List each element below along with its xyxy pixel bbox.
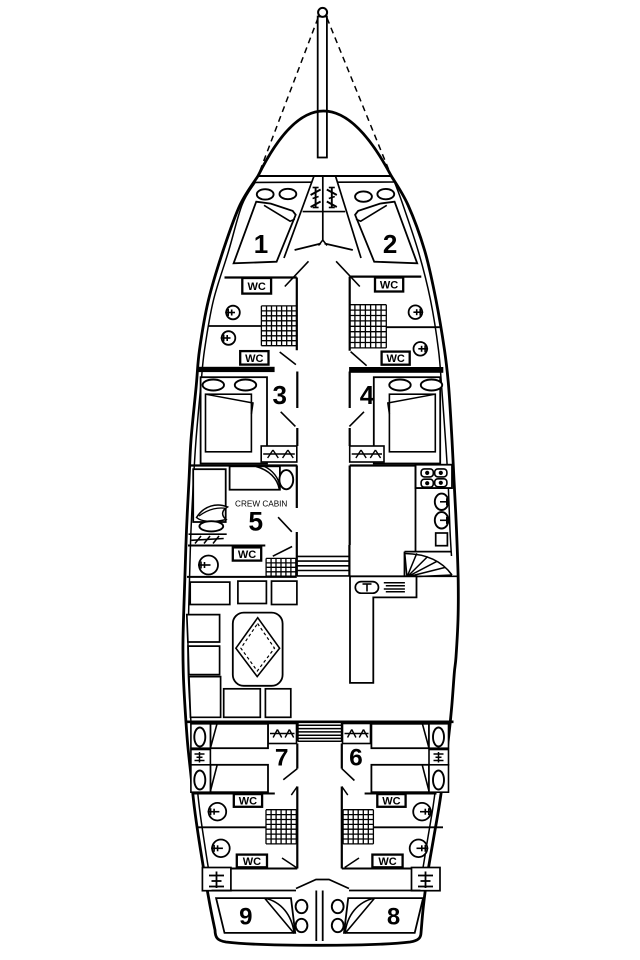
svg-text:WC: WC <box>248 281 266 293</box>
svg-text:8: 8 <box>387 904 400 931</box>
svg-text:WC: WC <box>239 795 257 807</box>
svg-text:WC: WC <box>238 549 256 561</box>
svg-text:6: 6 <box>349 745 363 772</box>
svg-text:5: 5 <box>248 507 263 537</box>
svg-text:4: 4 <box>360 380 375 410</box>
svg-text:1: 1 <box>254 229 268 259</box>
svg-text:WC: WC <box>245 353 263 365</box>
svg-text:WC: WC <box>382 795 400 807</box>
svg-text:7: 7 <box>275 745 289 772</box>
svg-text:WC: WC <box>243 856 261 868</box>
svg-text:2: 2 <box>383 229 397 259</box>
svg-text:9: 9 <box>239 904 252 931</box>
svg-text:WC: WC <box>386 353 404 365</box>
svg-text:WC: WC <box>378 856 396 868</box>
svg-text:WC: WC <box>380 280 398 292</box>
svg-text:3: 3 <box>272 380 286 410</box>
